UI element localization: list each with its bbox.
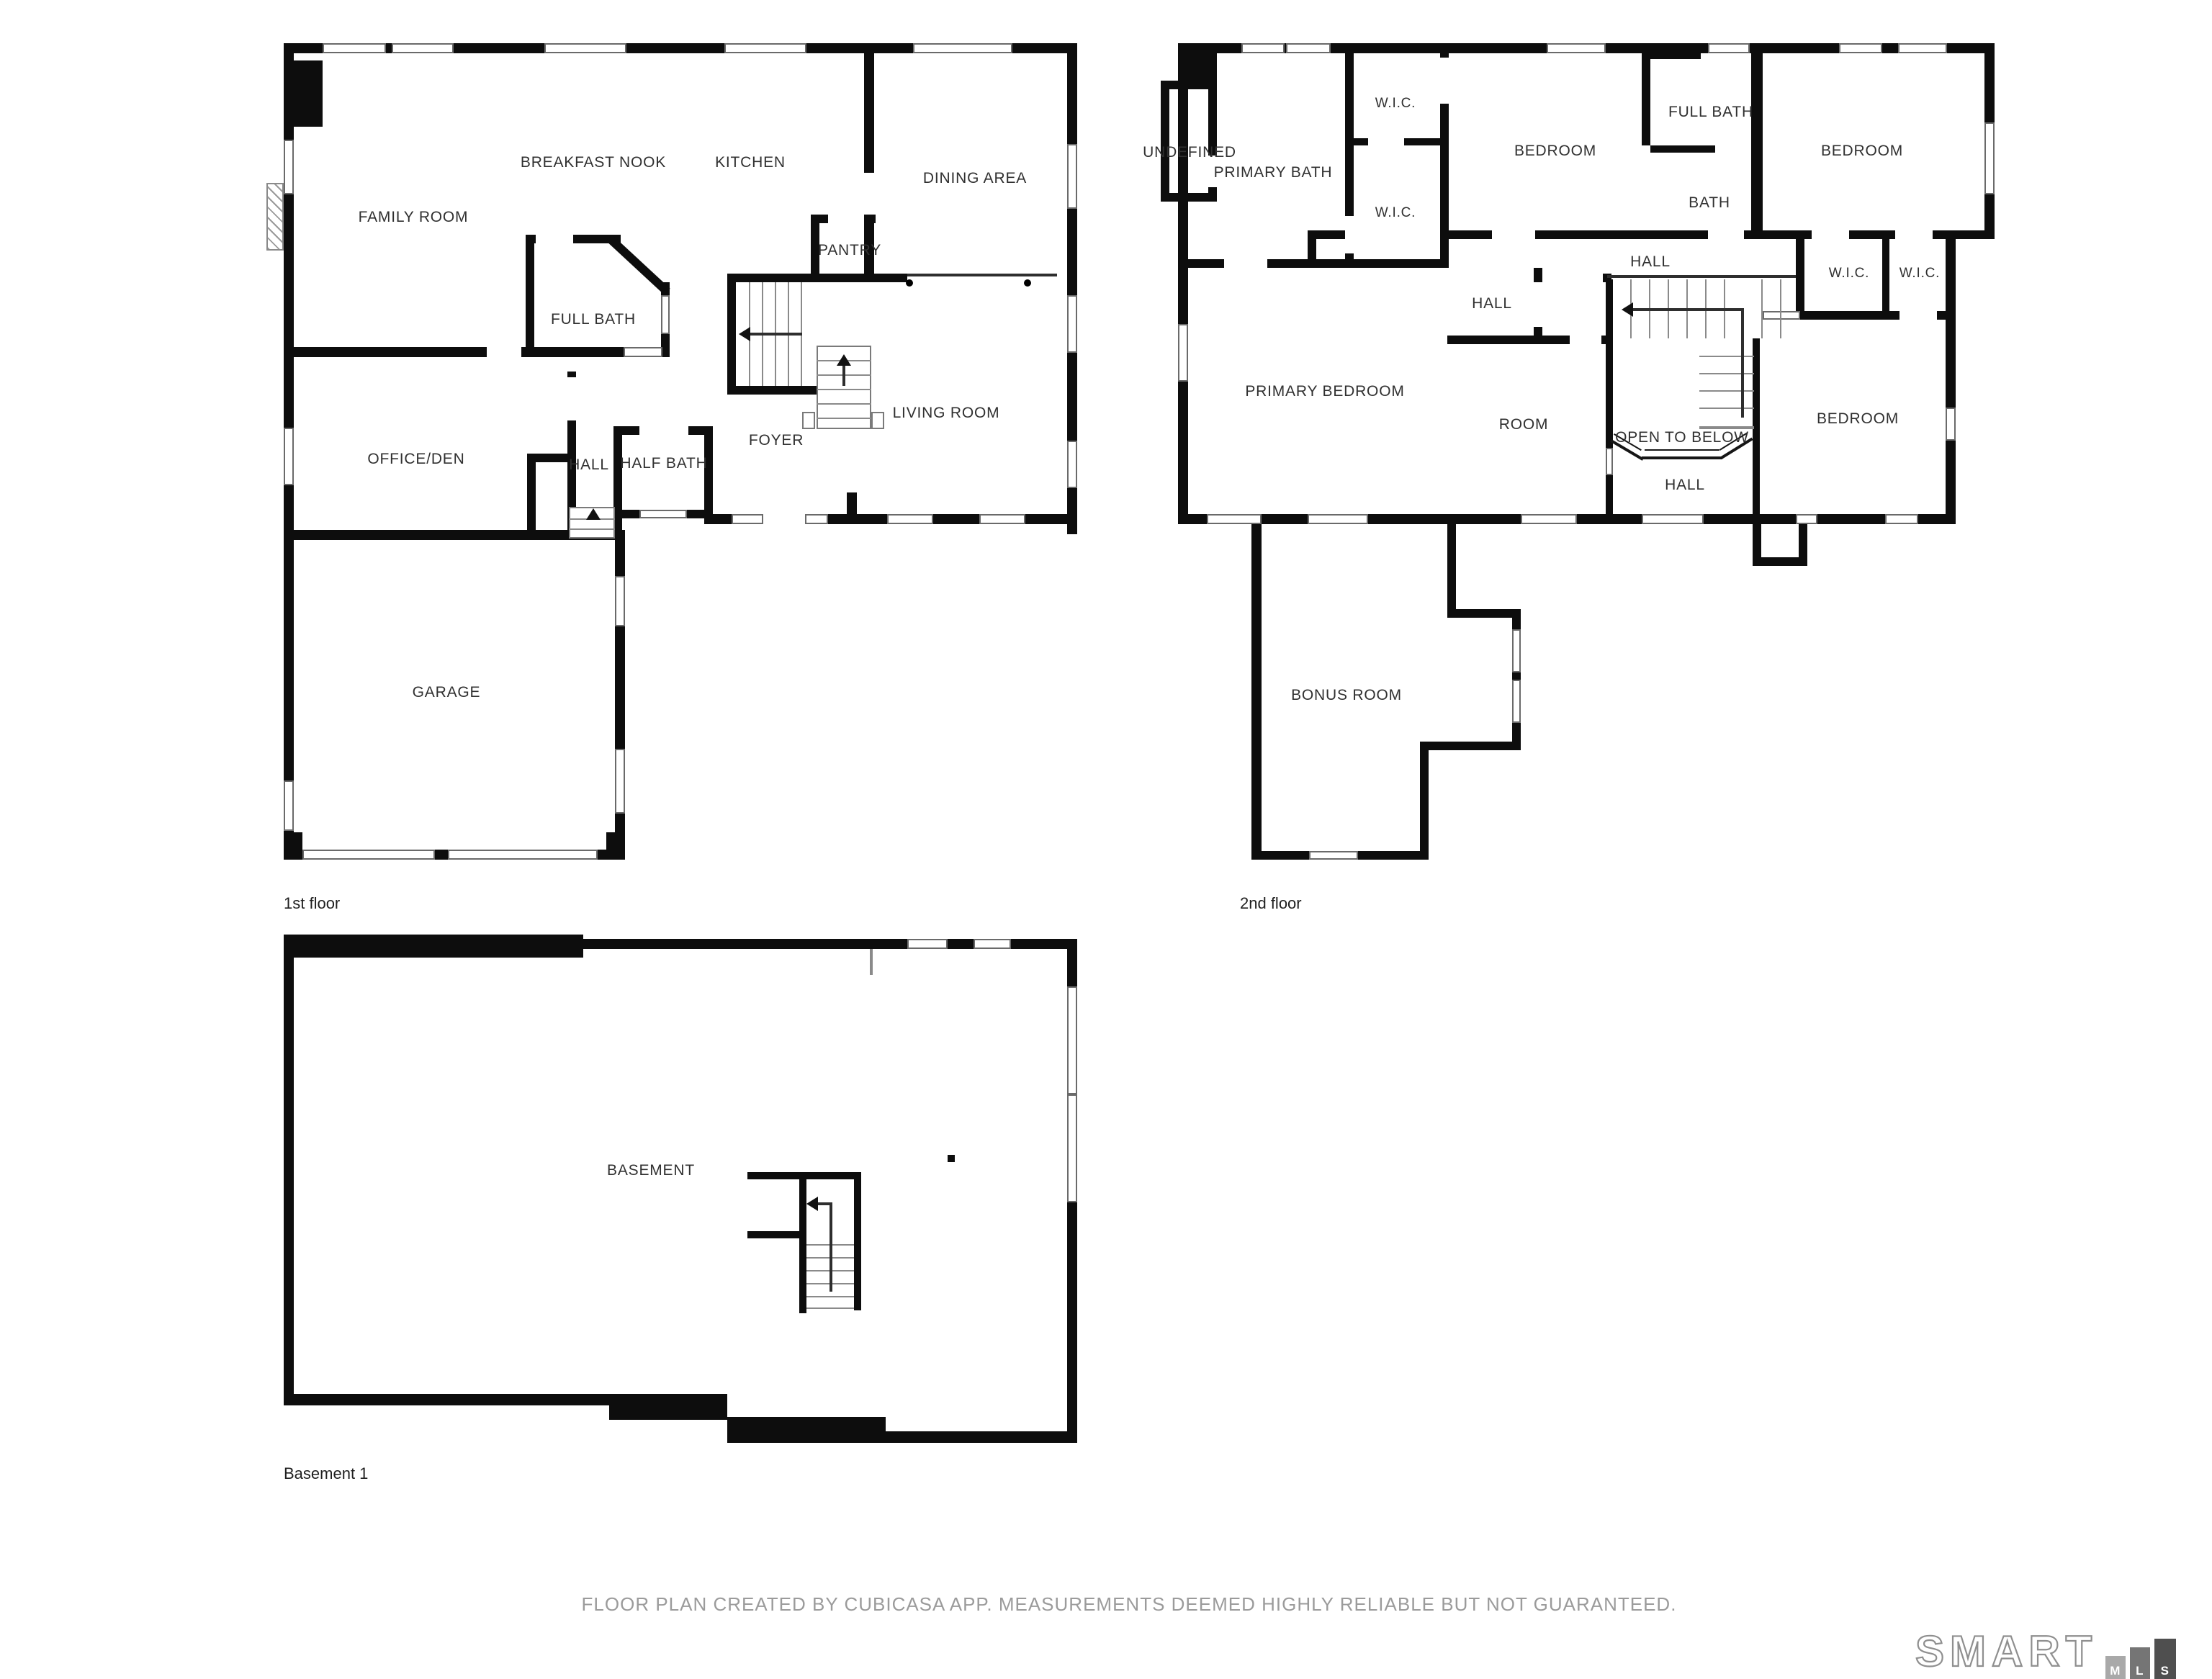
- floor-caption-first: 1st floor: [284, 896, 340, 913]
- logo-block-s: S: [2154, 1639, 2175, 1679]
- wall-segment: [284, 935, 583, 958]
- floor-caption-second: 2nd floor: [1240, 896, 1302, 913]
- stair-tread: [806, 1296, 854, 1297]
- floor-plan-basement: BASEMENT: [0, 0, 2212, 1659]
- wall-segment: [886, 1431, 1077, 1443]
- logo-block-m: M: [2105, 1656, 2125, 1679]
- logo-brand-text: SMART: [1915, 1627, 2098, 1679]
- logo-mls-blocks: M L S: [2105, 1639, 2175, 1679]
- wall-segment: [799, 1179, 806, 1313]
- stair-guide-line: [829, 1202, 832, 1292]
- window: [974, 939, 1011, 949]
- stair-tread: [870, 949, 873, 975]
- wall-segment: [609, 1394, 727, 1420]
- wall-segment: [948, 1155, 955, 1162]
- window: [1067, 986, 1077, 1094]
- window: [1067, 1094, 1077, 1202]
- direction-arrow: [806, 1197, 818, 1211]
- wall-segment: [747, 1231, 799, 1238]
- window: [907, 939, 948, 949]
- room-label-basement: BASEMENT: [607, 1162, 695, 1179]
- wall-segment: [727, 1417, 886, 1443]
- page: BREAKFAST NOOKKITCHENDINING AREAFAMILY R…: [0, 0, 2212, 1659]
- smartmls-logo: SMART M L S: [1915, 1619, 2189, 1679]
- wall-segment: [284, 935, 294, 1405]
- wall-segment: [854, 1179, 861, 1310]
- floor-caption-basement: Basement 1: [284, 1466, 368, 1483]
- wall-segment: [747, 1172, 861, 1179]
- logo-block-l: L: [2129, 1647, 2149, 1679]
- disclaimer-text: FLOOR PLAN CREATED BY CUBICASA APP. MEAS…: [582, 1593, 1677, 1615]
- wall-segment: [284, 1394, 609, 1405]
- stair-tread: [806, 1307, 854, 1309]
